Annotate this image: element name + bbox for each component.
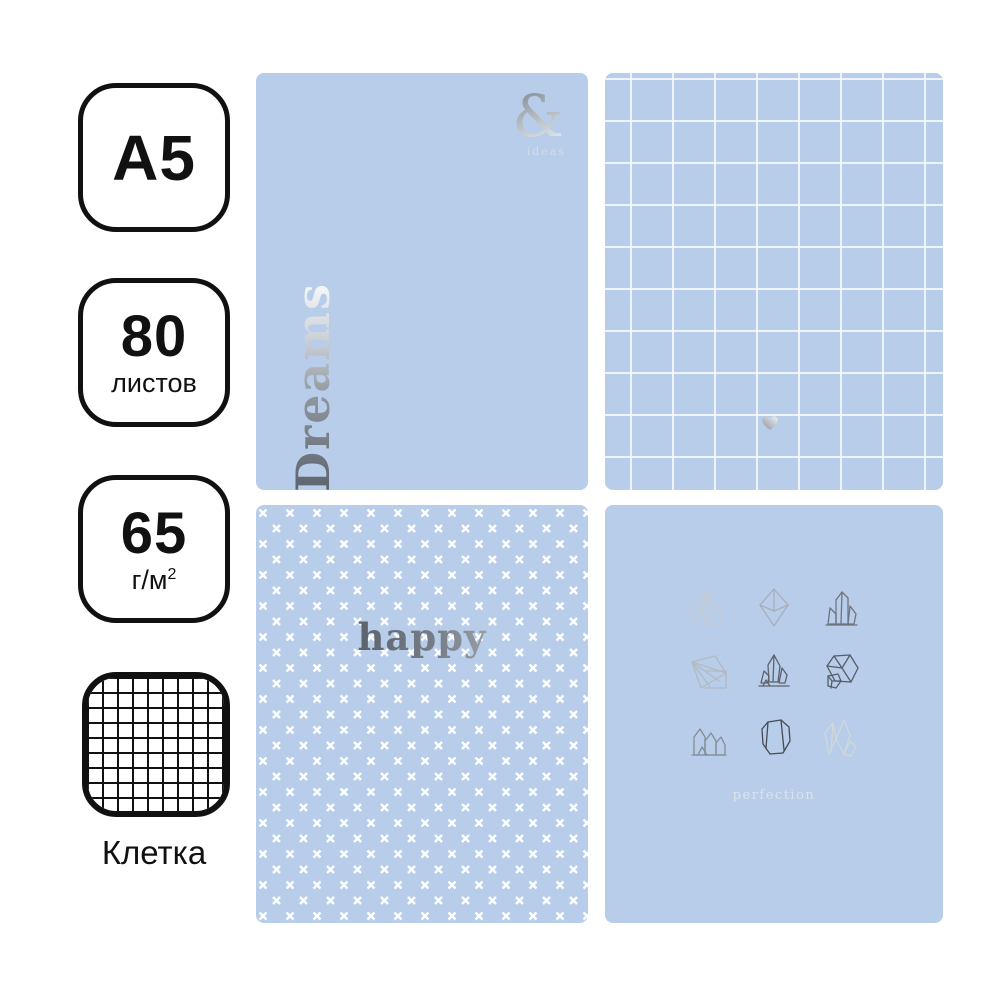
ampersand-foil: & (512, 87, 564, 145)
perfection-caption: perfection (605, 788, 943, 803)
notebook-cover-happy: happy (256, 505, 588, 923)
format-label: A5 (112, 126, 196, 190)
grid-squares-icon (88, 678, 224, 811)
sheets-value: 80 (121, 308, 188, 366)
crosses-pattern (256, 505, 588, 923)
crystal-spikes-icon-5 (751, 649, 797, 695)
crystal-stone-icon-8 (751, 714, 797, 760)
density-unit: г/м2 (132, 567, 177, 594)
sheets-badge: 80 листов (78, 278, 230, 427)
notebook-cover-dreams: & ideas Dreams (256, 73, 588, 490)
crystal-kite-icon-2 (751, 584, 797, 630)
notebook-cover-perfection: perfection (605, 505, 943, 923)
heart-icon (761, 415, 779, 431)
ruling-caption: Клетка (64, 834, 244, 872)
ruling-badge (82, 672, 230, 817)
crystal-polyhedron-icon-6 (817, 649, 863, 695)
ideas-label: ideas (527, 145, 566, 158)
product-image: A5 80 листов 65 г/м2 Клетка & ideas Drea… (0, 0, 1000, 1000)
format-badge: A5 (78, 83, 230, 232)
density-badge: 65 г/м2 (78, 475, 230, 623)
happy-title: happy (256, 615, 588, 659)
dreams-title: Dreams (286, 282, 340, 490)
crystal-shards-icon-9 (817, 714, 863, 760)
density-value: 65 (121, 505, 188, 563)
crystal-prism-icon-3 (817, 584, 863, 630)
sheets-unit: листов (111, 370, 197, 397)
crystal-icons-grid (685, 584, 863, 760)
crystal-cluster-icon-1 (685, 584, 731, 630)
crystal-fan-icon-4 (685, 649, 731, 695)
crystal-prisms-icon-7 (685, 714, 731, 760)
notebook-cover-grid (605, 73, 943, 490)
